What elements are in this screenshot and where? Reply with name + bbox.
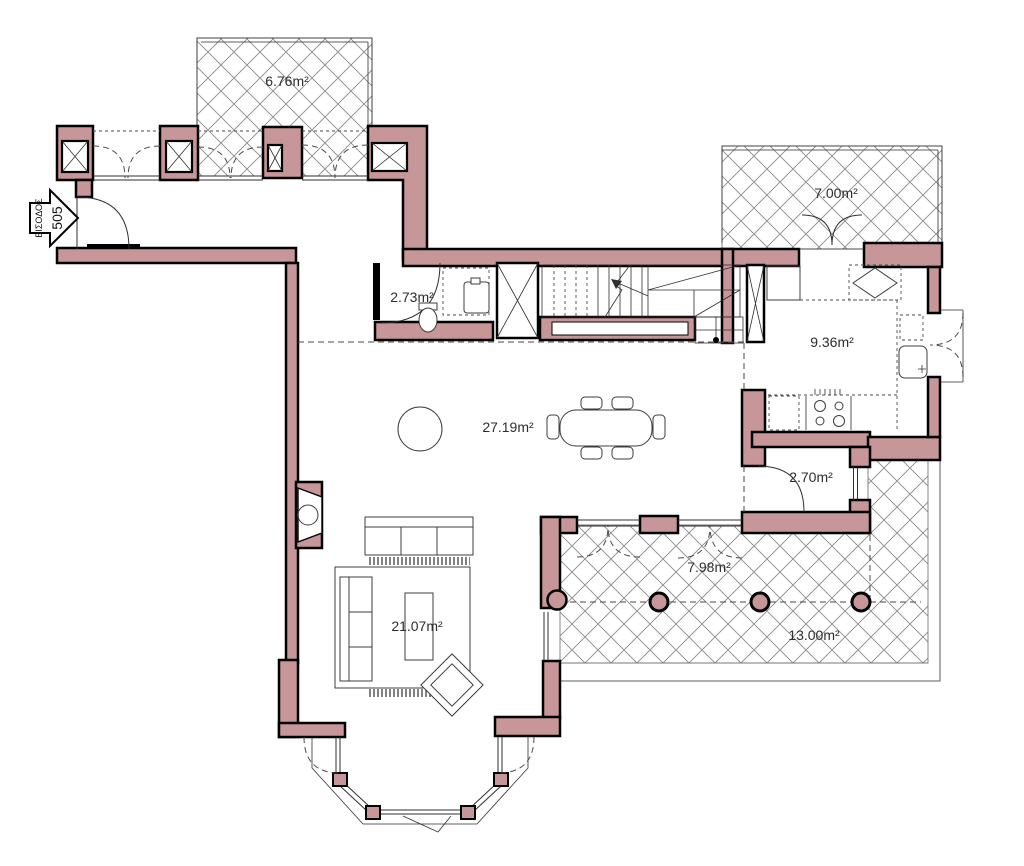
space-boundaries [298, 342, 744, 390]
window [854, 467, 858, 500]
chair [581, 397, 602, 409]
room-area-label: 9.36m² [810, 334, 854, 350]
veranda-hatch [560, 447, 940, 681]
wall [850, 447, 870, 467]
lounge-set [335, 517, 483, 716]
wall [57, 248, 296, 263]
wall [403, 249, 799, 266]
wall [76, 180, 92, 197]
wall [864, 243, 942, 267]
room-area-label: 21.07m² [391, 618, 443, 634]
entrance-arrow: ΕΙΣΟΔΟΣ 505 [30, 190, 78, 246]
sofa [365, 517, 473, 555]
bay-window [304, 737, 534, 832]
wall-foot [548, 591, 567, 610]
column [751, 593, 769, 611]
bay-post [333, 773, 347, 786]
column [852, 593, 870, 611]
pillar-icon [372, 143, 407, 171]
wall [286, 263, 298, 663]
washbasin-icon [464, 278, 489, 313]
sofa [340, 577, 372, 681]
room-area-label: 27.19m² [482, 419, 534, 435]
wall [722, 249, 733, 343]
kitchen-sink-icon [899, 346, 927, 378]
sink-diamond-icon [853, 268, 897, 298]
armchair [421, 654, 483, 716]
floor-plan: ΕΙΣΟΔΟΣ 505 6.76m² 7.00m² 2.73m² 9.36m² … [0, 0, 1024, 866]
wall [543, 661, 560, 718]
fireplace [298, 488, 322, 542]
wall [742, 512, 870, 533]
wall [928, 267, 940, 313]
wall [640, 516, 678, 533]
window [544, 612, 548, 661]
entry-door [77, 197, 129, 249]
floor-plan-drawing: ΕΙΣΟΔΟΣ 505 6.76m² 7.00m² 2.73m² 9.36m² … [0, 0, 1024, 866]
room-area-label: 13.00m² [788, 627, 840, 643]
pillar-icon [268, 145, 282, 171]
toilet-icon [419, 303, 437, 332]
room-area-label: 7.00m² [814, 185, 858, 201]
chair [612, 397, 633, 409]
fridge-icon [767, 266, 800, 300]
duct-shaft [747, 265, 764, 342]
bay-post [461, 806, 475, 819]
room-area-label: 6.76m² [265, 73, 309, 89]
bay-post [366, 806, 380, 819]
chair [581, 447, 602, 459]
room-area-label: 2.73m² [390, 289, 434, 305]
wall [495, 717, 560, 736]
wall [279, 723, 345, 737]
bay-post [494, 773, 508, 786]
room-area-label: 7.98m² [687, 559, 731, 575]
wall [373, 263, 380, 320]
entry-threshold [87, 244, 140, 249]
chair [653, 415, 665, 439]
room-area-label: 2.70m² [789, 469, 833, 485]
pillar-icon [62, 141, 88, 172]
column [650, 593, 668, 611]
wall [742, 390, 765, 466]
chair [547, 415, 559, 439]
kitchen-french-door [930, 310, 963, 382]
entrance-label: ΕΙΣΟΔΟΣ [34, 198, 44, 238]
round-table [398, 407, 442, 451]
duct-shaft [497, 263, 538, 338]
wall [752, 432, 870, 447]
wall [928, 377, 940, 437]
wall [868, 437, 940, 460]
entrance-number: 505 [49, 206, 65, 230]
dining-table [560, 410, 652, 446]
chair [612, 447, 633, 459]
pillar-icon [166, 141, 192, 172]
